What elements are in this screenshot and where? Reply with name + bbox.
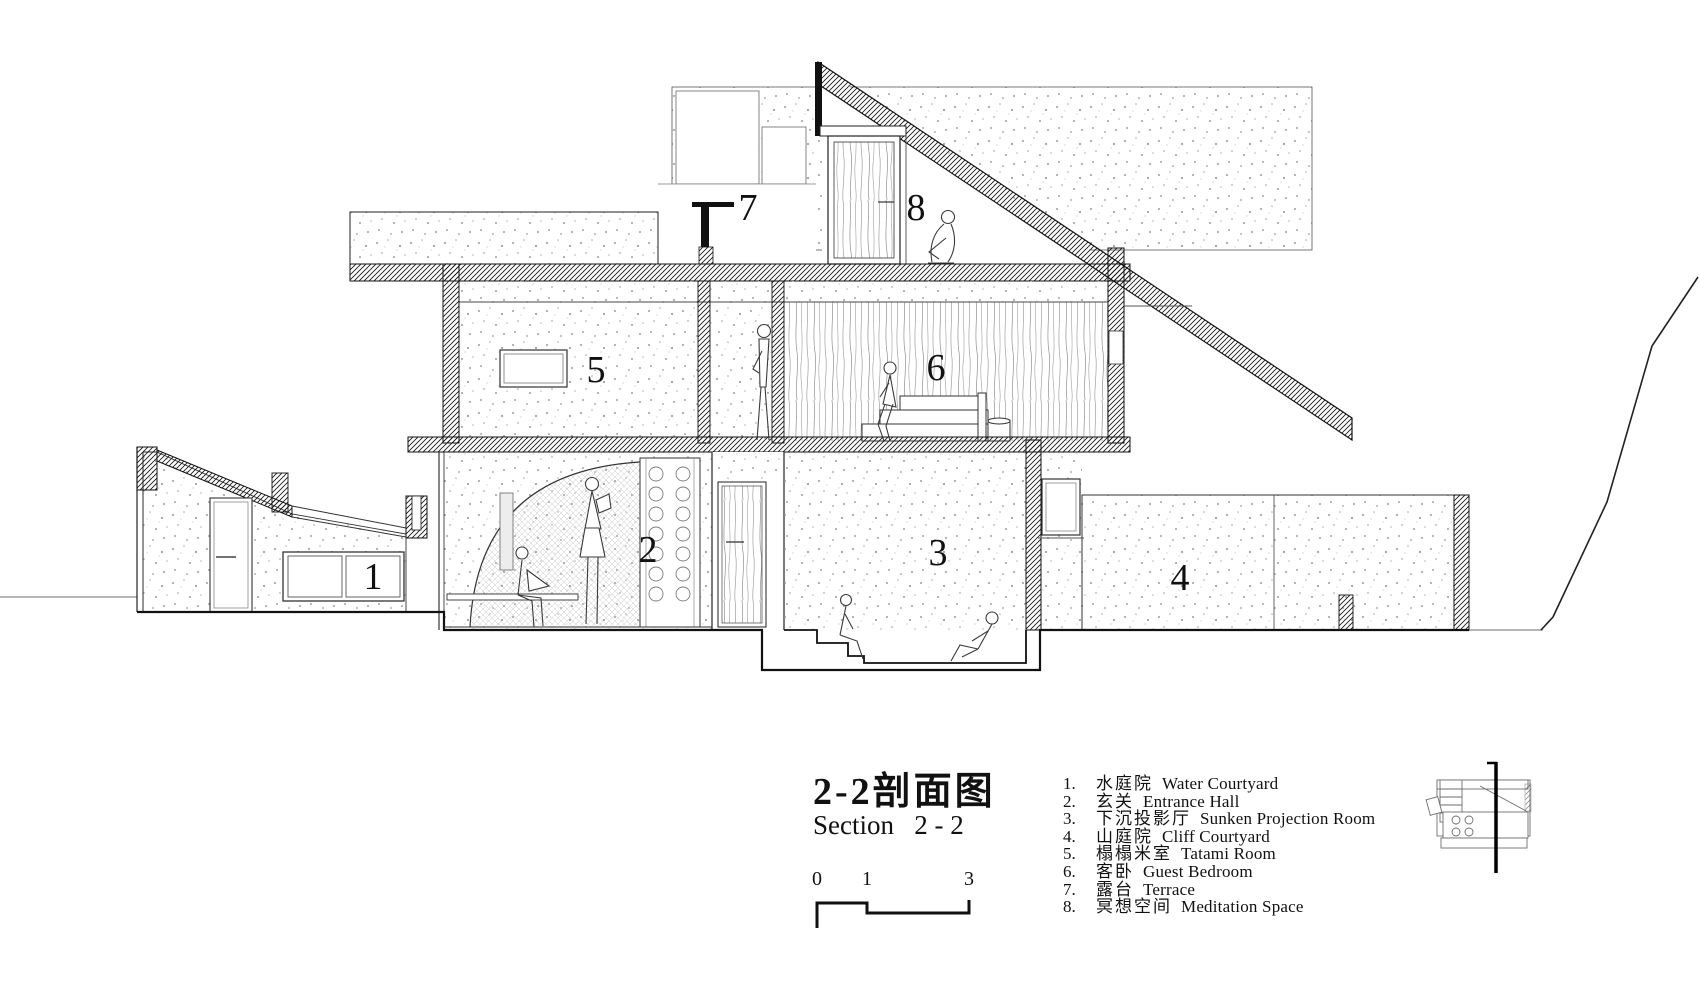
room-label-5: 5 [587,349,606,391]
legend-zh: 露台 [1096,881,1134,899]
legend-en: Sunken Projection Room [1200,810,1375,828]
main-left-wall [439,452,444,630]
legend-zh: 冥想空间 [1096,898,1172,916]
roof-cap-cut [137,447,157,490]
projection-room-wall [784,452,1026,630]
legend-item-4: 4. 山庭院 Cliff Courtyard [1063,828,1375,846]
room-label-8: 8 [907,187,926,229]
architectural-section-sheet: 1 2 3 4 5 6 7 8 2-2剖面图 Section 2 - 2 0 1… [0,0,1700,990]
legend-en: Water Courtyard [1162,775,1278,793]
wall-cut [1026,440,1041,630]
scale-bar [817,900,969,928]
legend-en: Tatami Room [1181,845,1276,863]
room-label-1: 1 [364,556,383,598]
scale-label-1: 1 [862,868,872,891]
legend-number: 4. [1063,828,1096,846]
drawing-title-zh: 2-2剖面图 [813,760,996,815]
legend-item-2: 2. 玄关 Entrance Hall [1063,793,1375,811]
legend-zh: 客卧 [1096,863,1134,881]
legend-item-8: 8. 冥想空间 Meditation Space [1063,898,1375,916]
sunken-steps [784,630,1026,663]
room-label-7: 7 [739,187,758,229]
room-legend: 1. 水庭院 Water Courtyard 2. 玄关 Entrance Ha… [1063,775,1375,916]
legend-en: Terrace [1143,881,1195,899]
tatami-room-wall [459,281,698,443]
room-label-3: 3 [929,532,948,574]
legend-item-6: 6. 客卧 Guest Bedroom [1063,863,1375,881]
legend-number: 5. [1063,845,1096,863]
bench [447,594,578,600]
scale-label-0: 0 [812,868,822,891]
column-cut [698,281,710,443]
hall-door [712,452,784,630]
legend-en: Entrance Hall [1143,793,1240,811]
legend-item-3: 3. 下沉投影厅 Sunken Projection Room [1063,810,1375,828]
wall-cut [272,473,288,512]
wall-panel [500,493,513,570]
room-label-2: 2 [639,529,658,571]
bedroom-beam-face [784,281,1108,302]
courtyard-window [1038,479,1084,538]
wall-window [1109,331,1123,364]
legend-number: 3. [1063,810,1096,828]
door-header-beam [820,126,906,136]
room-label-4: 4 [1171,557,1190,599]
cliff-courtyard [1082,495,1469,630]
legend-number: 2. [1063,793,1096,811]
drawing-title-en: Section 2 - 2 [813,810,964,841]
legend-number: 6. [1063,863,1096,881]
tatami-room-window [500,350,567,387]
courtyard-door [210,498,252,612]
legend-zh: 山庭院 [1096,828,1153,846]
section-drawing: 1 2 3 4 5 6 7 8 [0,0,1700,990]
legend-item-5: 5. 榻榻米室 Tatami Room [1063,845,1375,863]
room-label-6: 6 [927,347,946,389]
left-wall-cut [443,264,459,443]
legend-zh: 下沉投影厅 [1096,810,1191,828]
cliff-terrain-line [1541,277,1698,630]
floor-slab [408,437,1130,452]
legend-en: Cliff Courtyard [1162,828,1270,846]
legend-number: 8. [1063,898,1096,916]
courtyard-window [283,552,404,601]
gutter-cut [406,496,427,538]
meditation-door [828,136,906,264]
legend-en: Guest Bedroom [1143,863,1253,881]
roof-apex-post [815,62,822,136]
water-courtyard-block [137,447,427,612]
legend-number: 1. [1063,775,1096,793]
column-cut [772,281,784,443]
legend-number: 7. [1063,881,1096,899]
legend-en: Meditation Space [1181,898,1304,916]
key-plan [1426,762,1531,873]
legend-item-1: 1. 水庭院 Water Courtyard [1063,775,1375,793]
legend-zh: 榻榻米室 [1096,845,1172,863]
legend-zh: 玄关 [1096,793,1134,811]
legend-zh: 水庭院 [1096,775,1153,793]
roof-slab [350,264,1130,281]
legend-item-7: 7. 露台 Terrace [1063,881,1375,899]
terrace-parapet [350,212,658,264]
scale-label-3: 3 [964,868,974,891]
